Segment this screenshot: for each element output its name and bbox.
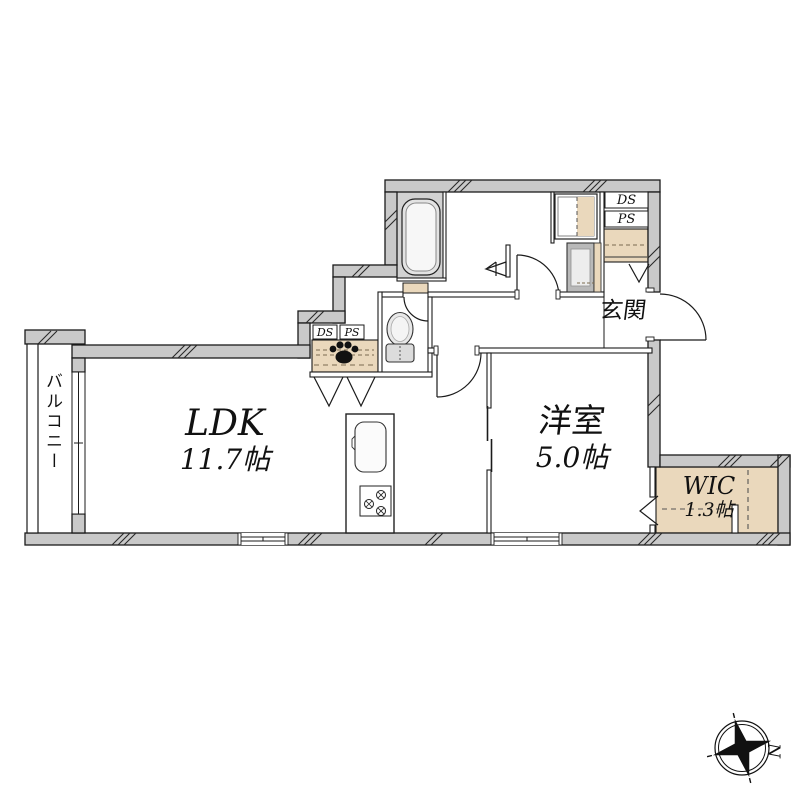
wic-size-label: 1.3帖	[656, 501, 762, 520]
sliding-door-ldk-bedroom	[488, 406, 492, 472]
balcony-label: バルコニー	[43, 372, 60, 472]
entrance-label: 玄関	[599, 300, 658, 323]
sink-icon	[352, 422, 386, 472]
ds-duct-label-upper: DS	[605, 194, 648, 207]
toilet-icon	[386, 313, 414, 363]
floor-plan-page: LDK 11.7帖 洋室 5.0帖 玄関 WIC 1.3帖 バルコニー DS P…	[0, 0, 800, 800]
ldk-room-label: LDK	[158, 406, 292, 442]
laundry-pan-icon	[555, 194, 597, 239]
washroom-door	[517, 255, 559, 297]
wic-room-label: WIC	[656, 474, 762, 498]
ps-duct-label-upper: PS	[605, 213, 648, 226]
floor-plan-drawing	[0, 0, 800, 800]
bedroom-window	[491, 533, 562, 545]
balcony-railing	[27, 344, 38, 533]
ldk-size-label: 11.7帖	[148, 446, 302, 474]
ldk-closet-bifold-doors	[314, 377, 375, 406]
bedroom-size-label: 5.0帖	[508, 444, 636, 472]
balcony-sliding-window	[72, 372, 85, 514]
hall-ldk-door	[437, 353, 481, 397]
shoe-cabinet-door-mark	[629, 264, 649, 282]
ldk-window	[238, 533, 288, 545]
kitchen-counter	[346, 414, 394, 533]
bedroom-room-label: 洋室	[506, 404, 638, 437]
bathtub-icon	[402, 199, 440, 275]
toilet-shelf	[403, 283, 428, 293]
front-door	[660, 294, 706, 340]
washing-machine-icon	[567, 243, 601, 292]
bath-folding-door	[486, 262, 506, 276]
compass-north-label: N	[764, 743, 781, 758]
ps-duct-label-closet: PS	[340, 327, 364, 338]
stove-icon	[360, 486, 391, 516]
ds-duct-label-closet: DS	[313, 327, 337, 338]
